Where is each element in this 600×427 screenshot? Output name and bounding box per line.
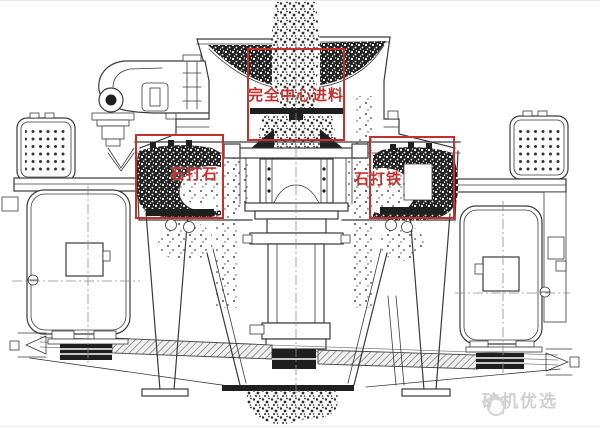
motor-left-junction-box [66, 243, 103, 276]
sand-maker-cross-section-diagram: 完全中心进料 石打石 石打铁 矿机优选 [0, 0, 600, 427]
belt-tensioner-right [546, 349, 579, 375]
motor-right-junction-box [483, 257, 519, 291]
watermark: 矿机优选 [482, 393, 558, 410]
watermark-logo-icon [482, 393, 508, 419]
material-pile [247, 388, 338, 424]
belt-tensioner-left [10, 333, 46, 357]
annotation-label-stone-on-iron: 石打铁 [354, 172, 402, 187]
annotation-label-center-feed: 完全中心进料 [247, 88, 345, 103]
support-pipe-cap [183, 55, 201, 61]
annotation-label-stone-on-stone: 石打石 [170, 167, 218, 182]
motor-right [460, 206, 550, 369]
main-shaft [243, 219, 350, 349]
motor-right-pulley [476, 353, 524, 369]
heatsink-panel-right [510, 111, 568, 179]
rotor-assembly [245, 159, 348, 219]
heatsink-panel-left [17, 113, 75, 181]
motor-left [27, 190, 130, 360]
motor-left-pulley [60, 344, 112, 360]
